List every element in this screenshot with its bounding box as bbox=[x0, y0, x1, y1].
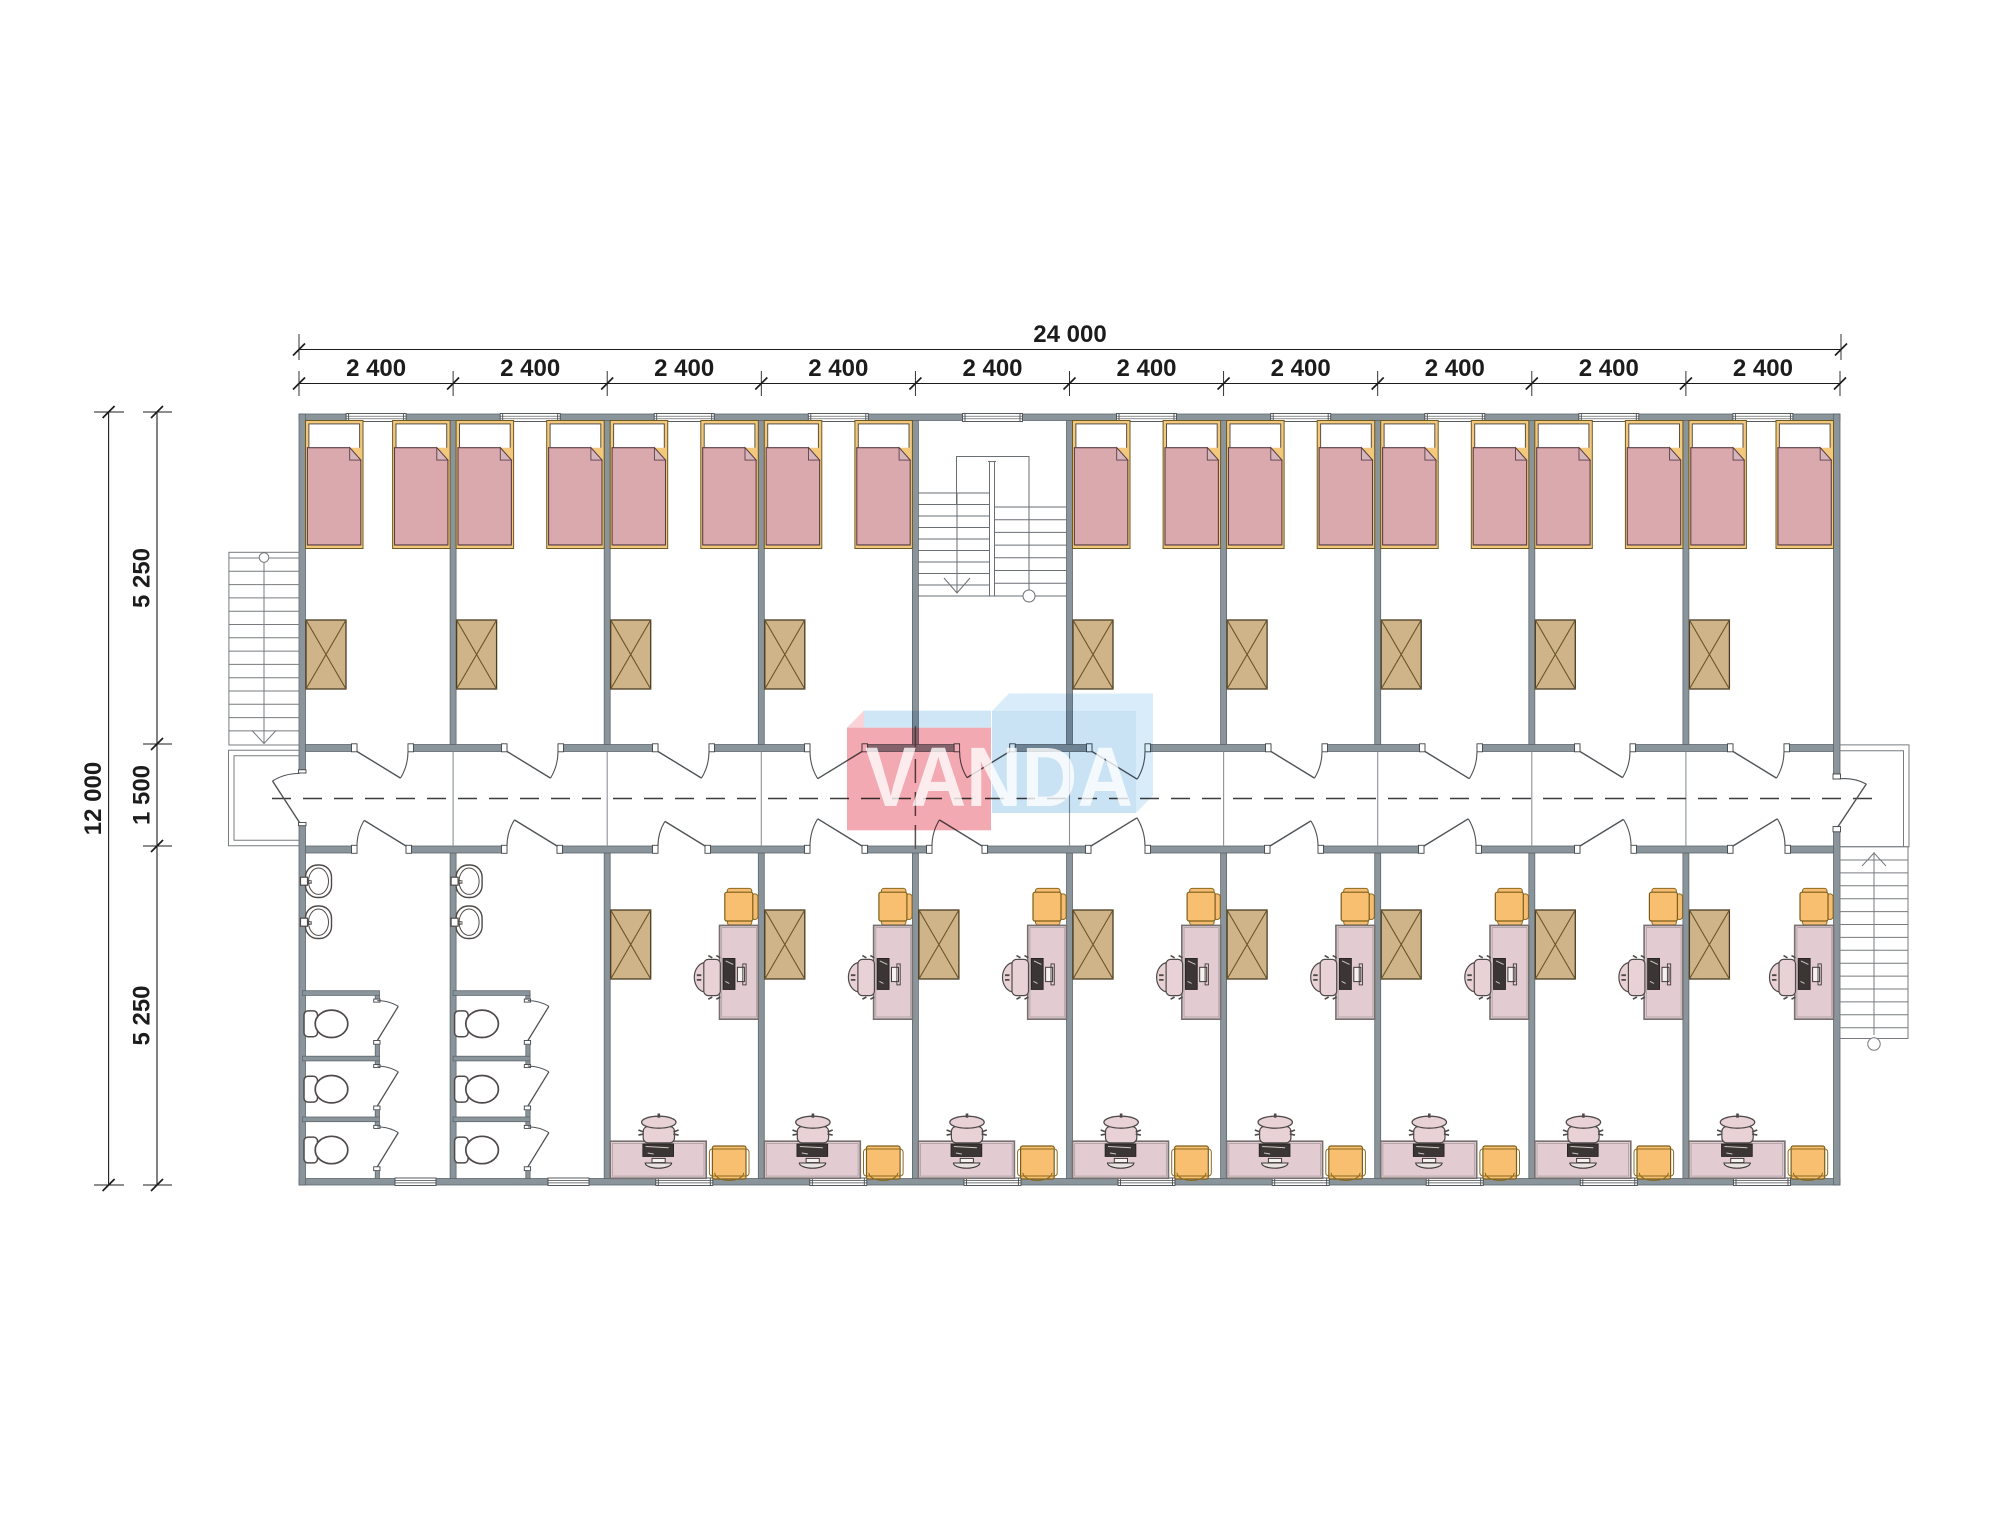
svg-text:2 400: 2 400 bbox=[654, 355, 714, 382]
svg-text:5 250: 5 250 bbox=[129, 548, 156, 608]
svg-text:2 400: 2 400 bbox=[1425, 355, 1485, 382]
svg-text:2 400: 2 400 bbox=[962, 355, 1022, 382]
svg-text:2 400: 2 400 bbox=[808, 355, 868, 382]
svg-text:VANDA: VANDA bbox=[865, 730, 1133, 824]
svg-text:2 400: 2 400 bbox=[1116, 355, 1176, 382]
svg-text:1 500: 1 500 bbox=[129, 765, 156, 825]
svg-text:5 250: 5 250 bbox=[129, 985, 156, 1045]
svg-text:24 000: 24 000 bbox=[1033, 321, 1106, 348]
svg-text:2 400: 2 400 bbox=[346, 355, 406, 382]
svg-text:2 400: 2 400 bbox=[1271, 355, 1331, 382]
svg-text:2 400: 2 400 bbox=[500, 355, 560, 382]
svg-text:2 400: 2 400 bbox=[1579, 355, 1639, 382]
svg-text:12 000: 12 000 bbox=[80, 762, 107, 835]
svg-text:2 400: 2 400 bbox=[1733, 355, 1793, 382]
